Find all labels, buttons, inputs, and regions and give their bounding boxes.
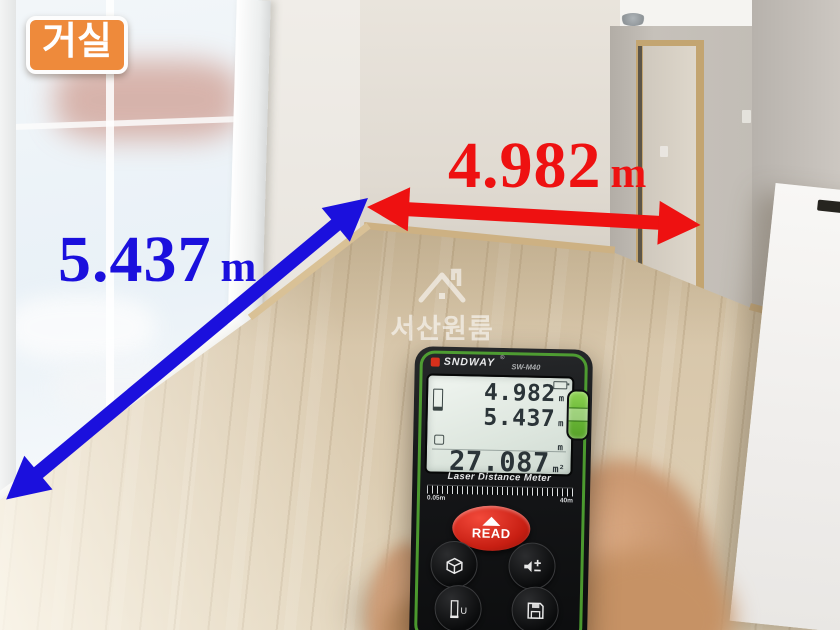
red-arrow-head-right [657, 201, 701, 247]
width-value: 4.982 [448, 129, 602, 202]
brand-logo-icon [431, 357, 440, 366]
watermark-text: 서산원룸 [366, 307, 518, 346]
lcd-row-2-value: 5.437 [483, 405, 555, 432]
brand-name: SNDWAY [444, 356, 496, 369]
photo-living-room: 서산원룸 4.982m 5.437m 거실 SNDWAY ® SW-M40 [0, 0, 840, 630]
wall-outlet [742, 110, 751, 123]
device-brand-row: SNDWAY ® SW-M40 [431, 354, 581, 373]
lcd-row-1-value: 4.982 [484, 380, 556, 407]
diagonal-unit: m [221, 244, 257, 291]
reference-button: U [434, 585, 482, 630]
light-switch [660, 146, 668, 157]
door [643, 46, 696, 302]
window-view-vehicle [5, 295, 155, 360]
lcd-row-1: 4.982m [448, 381, 564, 406]
cube-icon [443, 553, 465, 575]
width-measurement: 4.982m [448, 128, 646, 204]
reference-letter: U [460, 605, 467, 615]
diagonal-measurement: 5.437m [58, 222, 256, 298]
read-button-label: READ [472, 526, 511, 540]
lcd-row-1-unit: m [559, 394, 565, 404]
lcd-row-3-icon [434, 435, 444, 445]
room-label: 거실 [26, 16, 128, 74]
laser-distance-meter: SNDWAY ® SW-M40 4.982m 5.437m m 27.087m²… [409, 346, 593, 630]
bubble-level-band [569, 407, 588, 421]
house-icon [415, 268, 469, 304]
lcd-row-2: 5.437m [447, 406, 563, 431]
range-max: 40m [560, 497, 573, 504]
up-triangle-icon [482, 517, 500, 526]
save-button [511, 586, 559, 630]
model-name: SW-M40 [511, 362, 540, 372]
watermark: 서산원룸 [366, 268, 518, 346]
width-unit: m [611, 150, 647, 197]
reference-edge-icon [433, 389, 443, 411]
reference-edge-icon: U [447, 597, 469, 619]
registered-mark: ® [500, 355, 505, 361]
floppy-disk-icon [524, 599, 546, 621]
lcd-screen: 4.982m 5.437m m 27.087m² [424, 373, 574, 476]
range-min: 0.05m [427, 494, 446, 501]
bubble-level [566, 389, 590, 440]
lcd-row-2-unit: m [558, 419, 564, 429]
cabinet-slot [817, 199, 840, 217]
speaker-plus-minus-icon [521, 555, 543, 577]
ceiling-downlight [620, 13, 646, 26]
diagonal-value: 5.437 [58, 223, 212, 296]
